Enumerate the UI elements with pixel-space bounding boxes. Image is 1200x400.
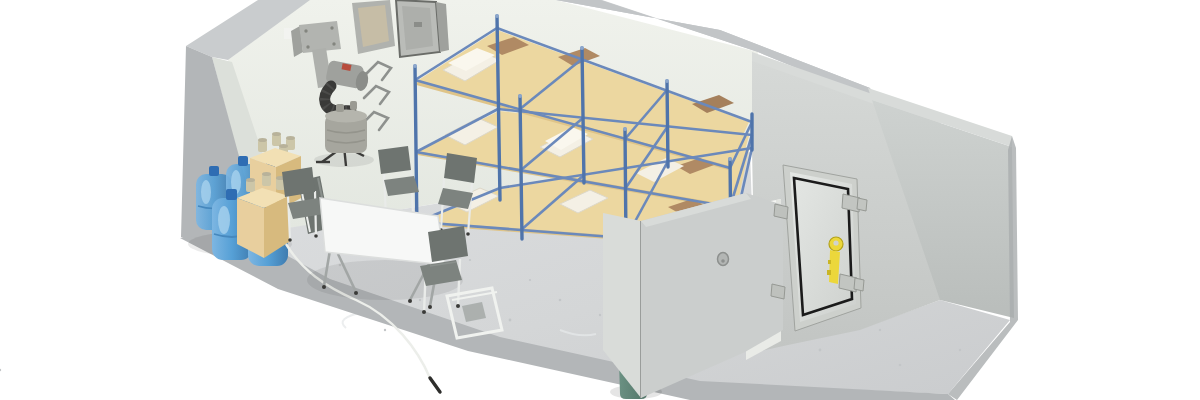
toilet-paper-holder: [718, 253, 729, 266]
hatch-door-inner: [402, 6, 433, 50]
hatch-left-panel-inset: [358, 5, 389, 47]
bunker-cutaway-render: [0, 0, 1200, 400]
hatch-latch: [414, 22, 422, 27]
bunker-scene: [0, 0, 1200, 400]
filter-bracket: [299, 21, 341, 53]
